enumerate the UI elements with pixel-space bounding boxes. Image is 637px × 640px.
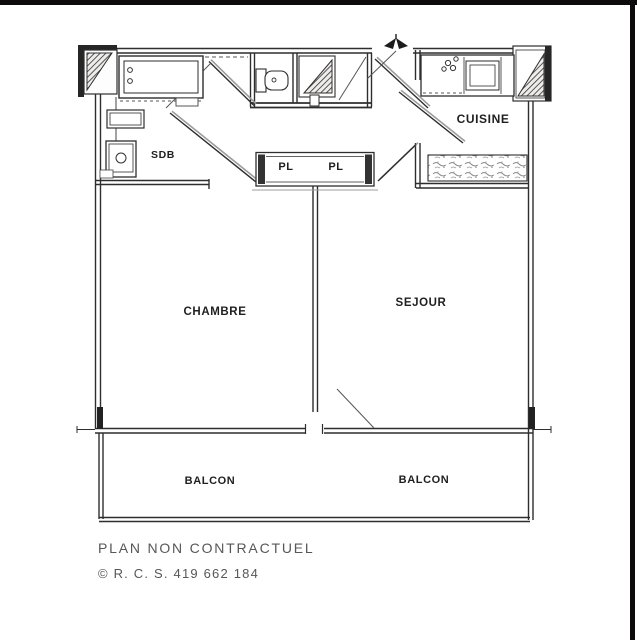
- room-label-balcon-left: BALCON: [185, 475, 236, 487]
- room-label-sdb: SDB: [151, 149, 175, 161]
- plan-registration-text: © R. C. S. 419 662 184: [98, 566, 259, 581]
- bathtub: [119, 56, 203, 98]
- floor-plan-linework: [0, 0, 637, 640]
- step-detail: [176, 98, 198, 106]
- room-label-cuisine: CUISINE: [457, 112, 510, 126]
- scan-border-right: [630, 0, 635, 640]
- kitchen-counter: [421, 55, 514, 96]
- room-label-pl-right: PL: [328, 161, 343, 173]
- kitchen-bar-counter: [428, 155, 527, 181]
- floor-plan-page: SDB CUISINE PL PL CHAMBRE SEJOUR BALCON …: [0, 0, 637, 640]
- closet-pl: [256, 153, 374, 187]
- radiator-shelf: [107, 110, 144, 128]
- room-label-sejour: SEJOUR: [396, 297, 447, 309]
- balcony-door-threshold: [305, 424, 324, 434]
- toilet: [256, 69, 288, 92]
- room-label-balcon-right: BALCON: [399, 474, 450, 486]
- duct-detail: [310, 95, 319, 106]
- washbasin: [100, 141, 136, 178]
- window-block-top-left: [78, 45, 117, 97]
- room-label-pl-left: PL: [278, 161, 293, 173]
- window-block-wc: [299, 56, 335, 97]
- north-arrow-icon: [384, 34, 408, 49]
- room-label-chambre: CHAMBRE: [184, 306, 247, 318]
- plan-disclaimer-text: PLAN NON CONTRACTUEL: [98, 540, 314, 556]
- window-block-kitchen: [513, 46, 551, 101]
